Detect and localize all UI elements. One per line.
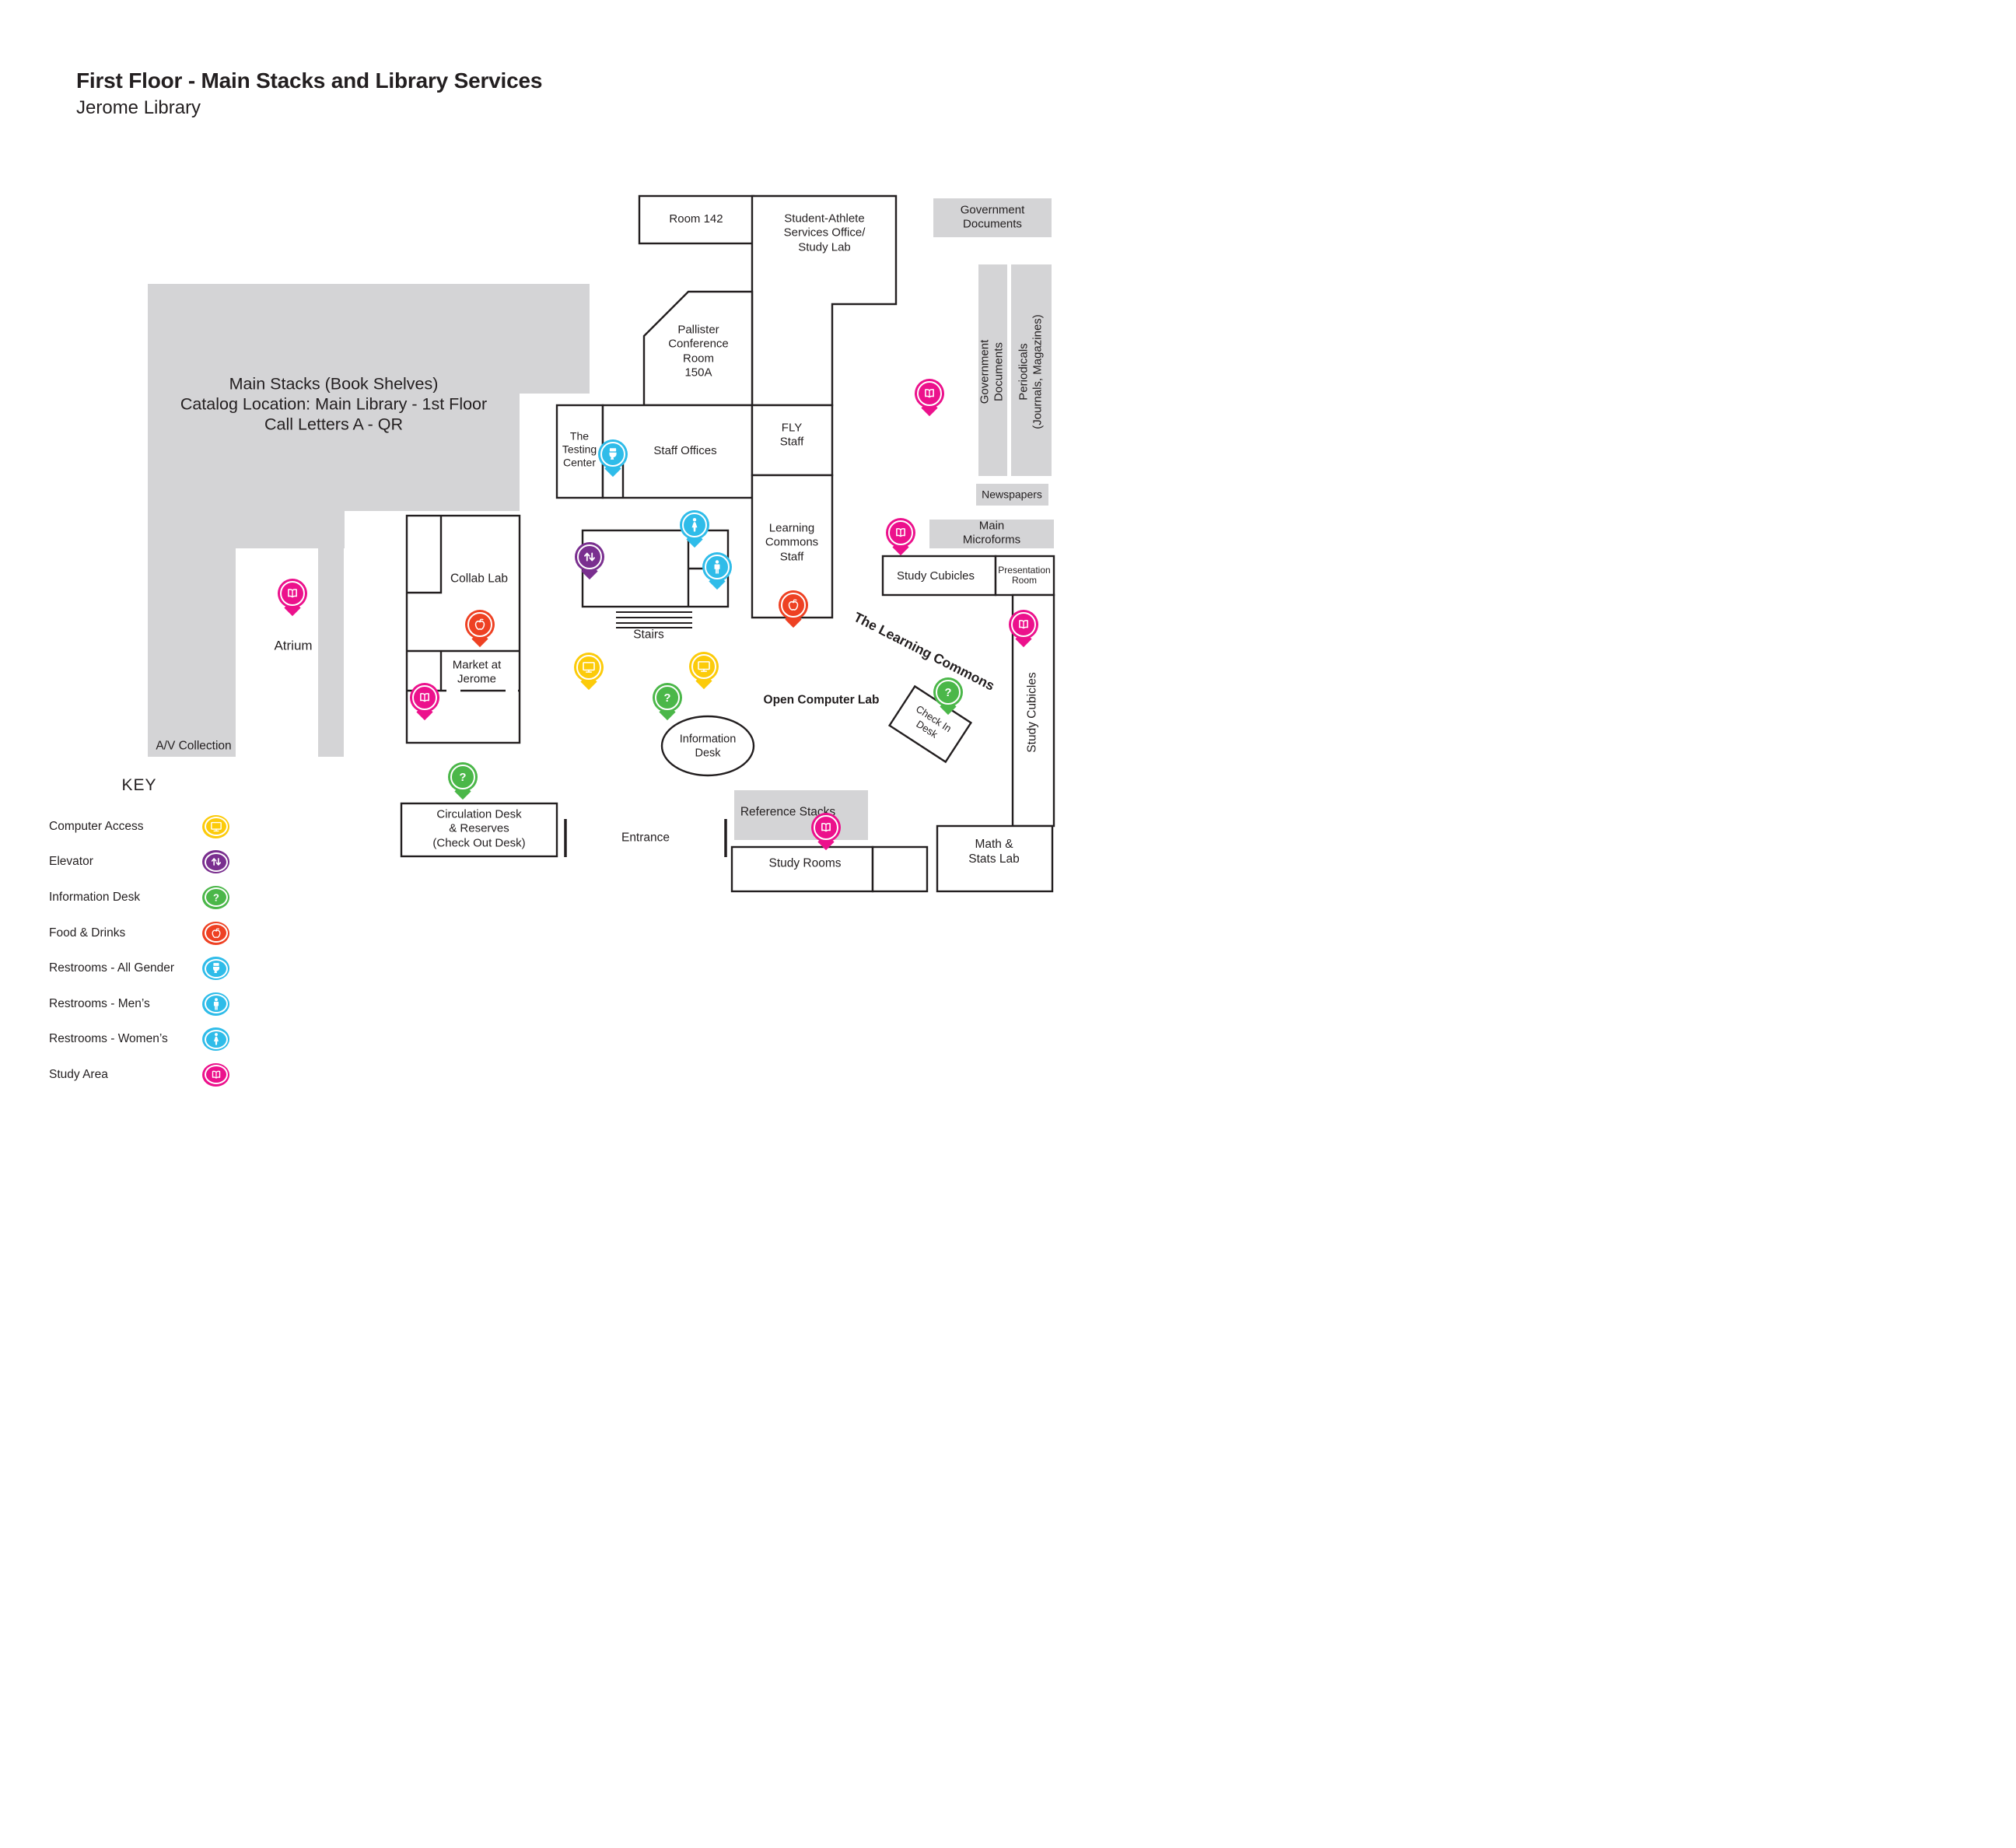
label-fly-staff: FLY Staff [780,422,804,450]
label-main-microforms: Main Microforms [963,520,1020,548]
label-open-computer-lab: Open Computer Lab [764,694,880,709]
label-av-collection: A/V Collection [156,740,231,754]
main-stacks-area-bridge [148,510,345,548]
label-main-stacks: Main Stacks (Book Shelves) Catalog Locat… [180,374,487,436]
key-item-label: Restrooms - Women’s [49,1032,202,1046]
key-item: Restrooms - Men’s [49,986,229,1022]
information-desk-pin: ? [448,762,478,792]
key-item: Study Area [49,1057,229,1093]
food-drinks-pin [779,590,808,620]
computer-access-pin [574,653,604,682]
key-item-label: Restrooms - All Gender [49,961,202,975]
label-gov-docs-stack: Government Documents [978,340,1007,404]
key-item-label: Information Desk [49,891,202,905]
label-information-desk: Information Desk [680,733,737,760]
label-pallister: Pallister Conference Room 150A [668,323,729,380]
computer-access-pin [689,652,719,681]
label-market: Market at Jerome [453,659,502,688]
label-room-142: Room 142 [669,212,723,226]
svg-text:?: ? [664,692,671,705]
label-learning-commons-staff: Learning Commons Staff [765,522,818,565]
key-item: Restrooms - Women’s [49,1022,229,1058]
label-staff-offices: Staff Offices [653,444,716,458]
key-item-label: Food & Drinks [49,926,202,940]
label-gov-docs-area: Government Documents [961,204,1025,233]
information-desk-pin: ? [933,677,963,707]
key-list: Computer AccessElevatorInformation Desk?… [49,809,229,1093]
restroom-all-gender-icon [202,957,229,980]
small-room-shape [873,847,927,891]
key-title: KEY [49,776,229,795]
title-block: First Floor - Main Stacks and Library Se… [76,68,542,119]
svg-text:?: ? [213,891,219,903]
label-periodicals-stack: Periodicals (Journals, Magazines) [1017,314,1046,429]
key-item-label: Restrooms - Men’s [49,997,202,1011]
study-area-pin [278,579,307,608]
label-testing-center: The Testing Center [562,429,597,469]
restroom-women-icon [202,1027,229,1051]
restroom-men-icon [202,992,229,1016]
key-item-label: Computer Access [49,820,202,834]
key-item-label: Elevator [49,855,202,869]
restroom-men-pin [702,552,732,582]
key-item: Elevator [49,845,229,880]
av-collection-area [148,548,236,757]
label-math-stats-lab: Math & Stats Lab [968,838,1020,867]
restroom-women-pin [680,510,709,540]
label-study-cubicles-right: Study Cubicles [1026,672,1041,752]
study-area-pin [410,683,439,712]
label-student-athlete: Student-Athlete Services Office/ Study L… [784,212,866,255]
floor-plan-map: First Floor - Main Stacks and Library Se… [0,0,1220,1118]
key-item: Food & Drinks [49,915,229,951]
label-stairs: Stairs [633,628,664,643]
label-circulation-desk: Circulation Desk & Reserves (Check Out D… [432,808,525,851]
page-subtitle: Jerome Library [76,97,542,119]
computer-access-icon [202,815,229,838]
label-newspapers: Newspapers [982,488,1042,501]
label-atrium: Atrium [274,639,312,655]
key-item-label: Study Area [49,1068,202,1082]
information-desk-pin: ? [653,683,682,712]
food-drinks-icon [202,922,229,945]
restroom-all-gender-pin [598,439,628,469]
elevator-pin [575,542,604,572]
study-area-pin [886,518,915,548]
stairs-treads [616,607,692,628]
label-collab-lab: Collab Lab [450,572,508,587]
label-entrance: Entrance [621,831,670,846]
main-stacks-leg [318,548,344,757]
page-title: First Floor - Main Stacks and Library Se… [76,68,542,93]
food-drinks-pin [465,610,495,639]
study-area-pin [915,379,944,408]
svg-text:?: ? [945,687,952,699]
label-study-cubicles: Study Cubicles [897,569,975,583]
key-item: Computer Access [49,809,229,845]
label-study-rooms: Study Rooms [768,857,841,872]
label-presentation-room: Presentation Room [998,565,1050,586]
key-item: Information Desk? [49,880,229,915]
key-item: Restrooms - All Gender [49,950,229,986]
elevator-icon [202,850,229,873]
study-area-pin [811,813,841,842]
study-area-pin [1009,610,1038,639]
information-desk-icon: ? [202,886,229,909]
svg-text:?: ? [460,772,467,784]
study-area-icon [202,1063,229,1087]
